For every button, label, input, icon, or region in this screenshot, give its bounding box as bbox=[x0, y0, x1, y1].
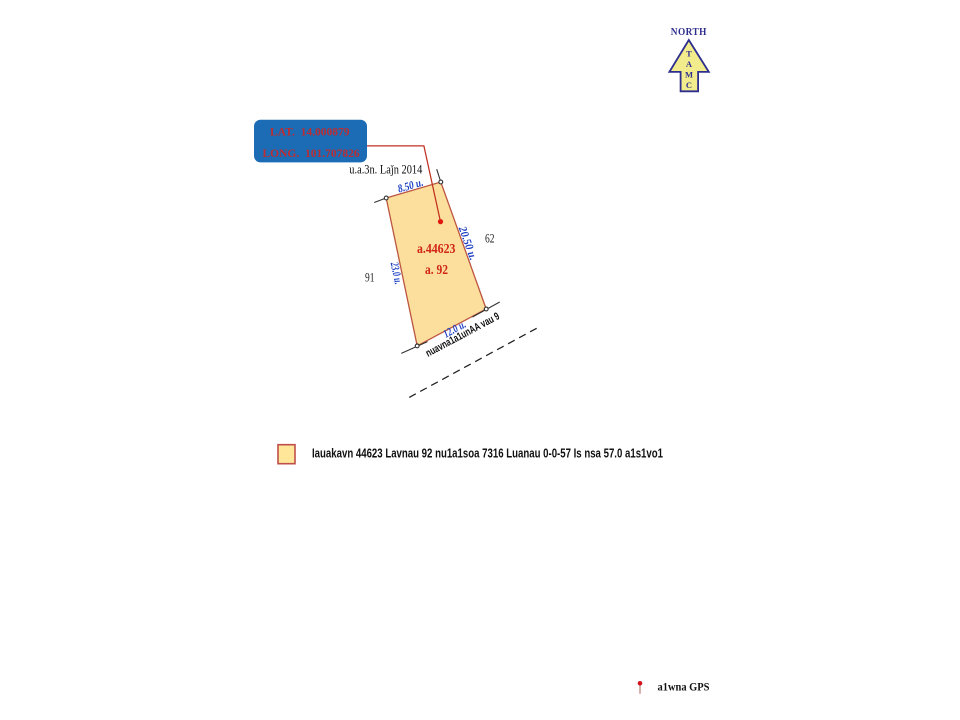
svg-text:M: M bbox=[685, 70, 693, 80]
svg-text:T: T bbox=[686, 49, 692, 59]
svg-text:u.a.3n. Laǰn 2014: u.a.3n. Laǰn 2014 bbox=[349, 163, 423, 177]
svg-text:LAT. 14.000879: LAT. 14.000879 bbox=[270, 127, 350, 139]
svg-text:NORTH: NORTH bbox=[671, 27, 707, 38]
svg-text:A: A bbox=[686, 59, 693, 69]
svg-text:a.44623: a.44623 bbox=[417, 241, 456, 256]
svg-text:91: 91 bbox=[365, 271, 375, 285]
svg-text:Iauakavn 44623 Lavnau 92 nu1a1: Iauakavn 44623 Lavnau 92 nu1a1soa 7316 L… bbox=[312, 445, 663, 460]
svg-text:a1wna GPS: a1wna GPS bbox=[658, 680, 710, 694]
svg-text:LONG. 101.707826: LONG. 101.707826 bbox=[263, 148, 360, 160]
svg-text:a. 92: a. 92 bbox=[425, 263, 448, 278]
svg-text:62: 62 bbox=[485, 232, 495, 246]
svg-text:C: C bbox=[686, 80, 692, 90]
